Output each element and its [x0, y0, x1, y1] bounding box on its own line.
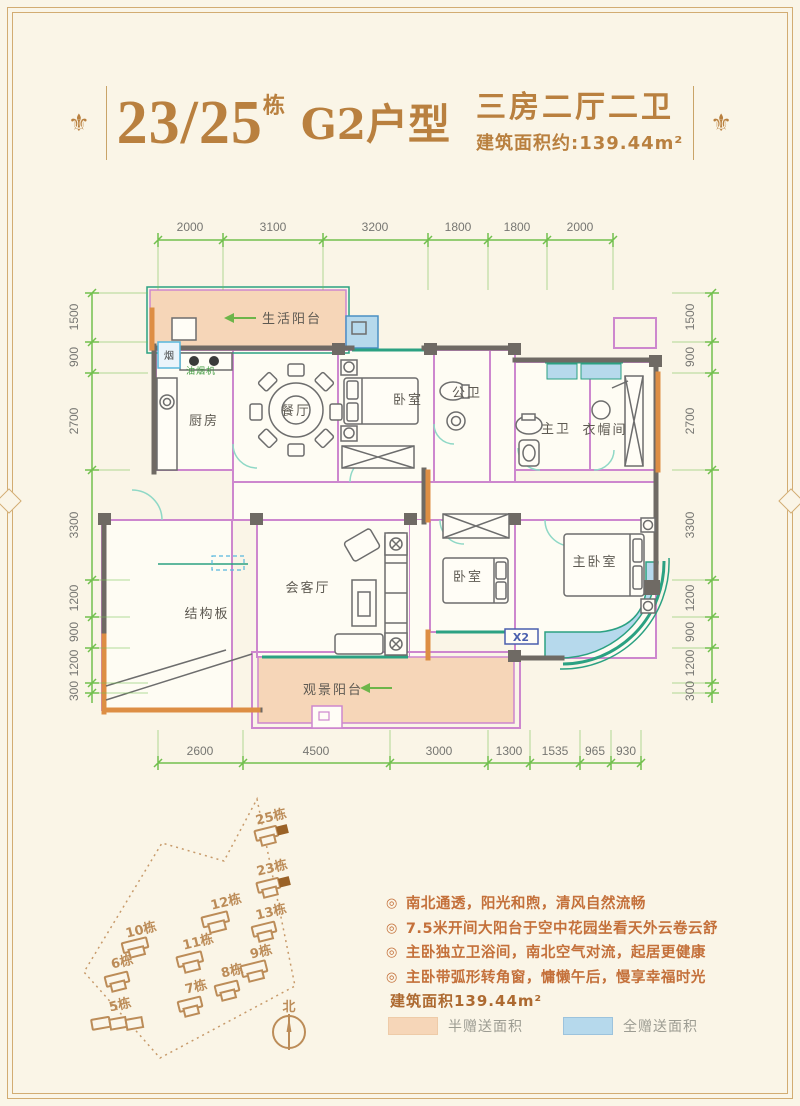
- svg-text:3300: 3300: [683, 511, 697, 538]
- bullet-item: ◎ 南北通透，阳光和煦，清风自然流畅: [386, 892, 732, 917]
- svg-text:12栋: 12栋: [209, 891, 243, 914]
- label-bedroom-top: 卧室: [393, 392, 423, 408]
- svg-text:300: 300: [67, 681, 81, 701]
- siteplan-building-8: [215, 981, 241, 1002]
- label-kitchen: 厨房: [189, 413, 219, 429]
- label-range-hood: 油烟机: [186, 365, 216, 377]
- svg-text:1200: 1200: [683, 649, 697, 676]
- svg-text:1200: 1200: [67, 649, 81, 676]
- svg-text:11栋: 11栋: [181, 931, 215, 954]
- label-master-bath: 主卫: [541, 422, 571, 437]
- svg-text:2700: 2700: [683, 407, 697, 434]
- siteplan-building-6: [105, 972, 131, 993]
- svg-text:900: 900: [683, 622, 697, 642]
- svg-text:北: 北: [282, 1000, 295, 1015]
- bullet-text: 7.5米开间大阳台于空中花园坐看天外云卷云舒: [406, 917, 718, 942]
- label-flue: 烟: [164, 349, 174, 362]
- label-living-room: 会客厅: [285, 580, 330, 596]
- svg-text:900: 900: [67, 622, 81, 642]
- siteplan: 25栋 23栋 12栋 13栋 10栋 11栋 9栋 8栋: [84, 799, 305, 1058]
- svg-text:1800: 1800: [445, 220, 472, 234]
- bullet-icon: ◎: [386, 892, 398, 917]
- label-master-bedroom: 主卧室: [572, 554, 617, 570]
- siteplan-building-12: [201, 911, 230, 934]
- svg-text:9栋: 9栋: [248, 942, 273, 963]
- siteplan-building-13: [252, 922, 278, 943]
- svg-text:965: 965: [585, 744, 605, 758]
- svg-text:3300: 3300: [67, 511, 81, 538]
- bullet-icon: ◎: [386, 966, 398, 991]
- legend-swatch-full-gift: [563, 1017, 613, 1035]
- legend-label-half-gift: 半赠送面积: [448, 1016, 523, 1036]
- bullet-text: 南北通透，阳光和煦，清风自然流畅: [406, 892, 646, 917]
- north-indicator: 北: [273, 1000, 305, 1050]
- dimensions-bottom: 2600 4500 3000 1300 1535 965 930: [154, 730, 645, 770]
- svg-text:6栋: 6栋: [109, 952, 134, 973]
- label-public-bath: 公卫: [452, 386, 482, 401]
- bullet-text: 主卧带弧形转角窗，慵懒午后，慢享幸福时光: [406, 966, 706, 991]
- siteplan-building-9: [240, 960, 268, 983]
- svg-text:1500: 1500: [67, 303, 81, 330]
- svg-text:1200: 1200: [683, 584, 697, 611]
- svg-text:1500: 1500: [683, 303, 697, 330]
- svg-text:1300: 1300: [496, 744, 523, 758]
- siteplan-building-5: [91, 1011, 143, 1035]
- label-view-balcony: 观景阳台: [303, 683, 363, 698]
- bullet-item: ◎ 7.5米开间大阳台于空中花园坐看天外云卷云舒: [386, 917, 732, 942]
- svg-text:930: 930: [616, 744, 636, 758]
- svg-text:2000: 2000: [567, 220, 594, 234]
- svg-text:3100: 3100: [260, 220, 287, 234]
- svg-text:7栋: 7栋: [183, 977, 208, 998]
- svg-text:900: 900: [67, 347, 81, 367]
- svg-text:4500: 4500: [303, 744, 330, 758]
- svg-text:8栋: 8栋: [219, 961, 244, 982]
- svg-text:2700: 2700: [67, 407, 81, 434]
- selling-points: ◎ 南北通透，阳光和煦，清风自然流畅 ◎ 7.5米开间大阳台于空中花园坐看天外云…: [386, 892, 732, 990]
- svg-text:1200: 1200: [67, 584, 81, 611]
- label-structural-slab: 结构板: [184, 607, 229, 622]
- svg-text:2000: 2000: [177, 220, 204, 234]
- bullet-text: 主卧独立卫浴间，南北空气对流，起居更健康: [406, 941, 706, 966]
- legend-swatch-half-gift: [388, 1017, 438, 1035]
- svg-text:13栋: 13栋: [254, 901, 288, 924]
- svg-text:2600: 2600: [187, 744, 214, 758]
- label-life-balcony: 生活阳台: [262, 312, 322, 327]
- label-cloakroom: 衣帽间: [582, 422, 627, 438]
- svg-text:3200: 3200: [362, 220, 389, 234]
- legend-label-full-gift: 全赠送面积: [623, 1016, 698, 1036]
- svg-text:23栋: 23栋: [255, 857, 289, 880]
- dimensions-right: 1500 900 2700 3300 1200 900 1200 300: [672, 289, 719, 703]
- svg-text:5栋: 5栋: [107, 995, 132, 1016]
- bullet-item: ◎ 主卧带弧形转角窗，慵懒午后，慢享幸福时光: [386, 966, 732, 991]
- svg-text:3000: 3000: [426, 744, 453, 758]
- siteplan-building-7: [178, 997, 204, 1018]
- bullet-item: ◎ 主卧独立卫浴间，南北空气对流，起居更健康: [386, 941, 732, 966]
- svg-text:10栋: 10栋: [124, 919, 158, 942]
- bullet-icon: ◎: [386, 941, 398, 966]
- label-bedroom-mid: 卧室: [453, 569, 483, 585]
- dimensions-top: 2000 3100 3200 1800 1800 2000: [154, 220, 617, 290]
- legend: 半赠送面积 全赠送面积: [388, 1016, 698, 1036]
- label-window-mark: X2: [513, 631, 529, 644]
- svg-text:1800: 1800: [504, 220, 531, 234]
- svg-text:900: 900: [683, 347, 697, 367]
- svg-text:300: 300: [683, 681, 697, 701]
- bullet-icon: ◎: [386, 917, 398, 942]
- label-dining: 餐厅: [281, 403, 311, 419]
- area-note: 建筑面积139.44m²: [390, 990, 542, 1011]
- siteplan-building-11: [176, 951, 204, 974]
- svg-text:1535: 1535: [542, 744, 569, 758]
